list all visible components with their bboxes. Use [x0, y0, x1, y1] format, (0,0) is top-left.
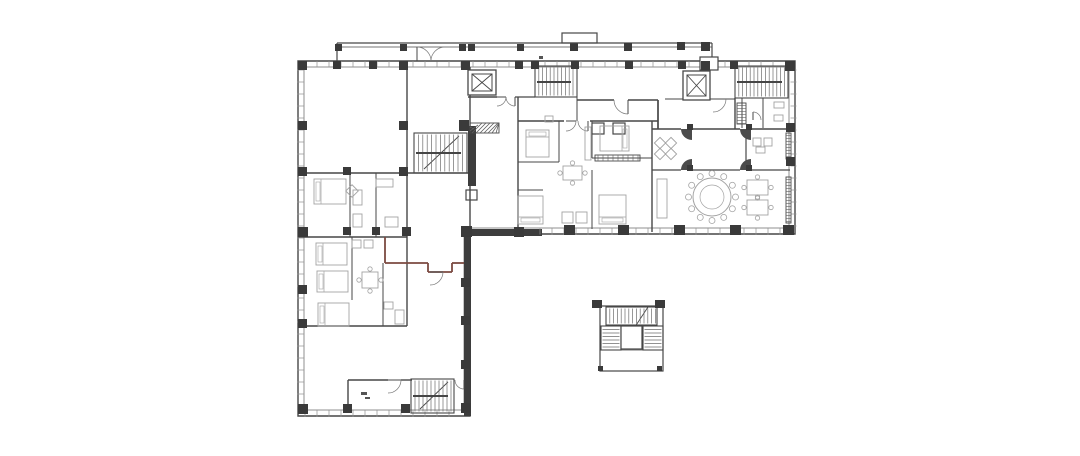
dining-table: [747, 180, 768, 195]
bed: [526, 130, 549, 157]
structural-column: [657, 366, 662, 371]
bed-pillow: [602, 218, 623, 222]
structural-column: [298, 227, 308, 237]
structural-column: [402, 227, 411, 236]
bed-pillow: [316, 182, 320, 201]
casework: [352, 240, 361, 248]
bed-pillow: [529, 132, 546, 136]
casework: [385, 217, 398, 227]
structural-column: [333, 61, 341, 69]
banquet-chair: [721, 174, 727, 180]
chair: [769, 185, 773, 189]
chair: [583, 171, 587, 175]
chair: [357, 278, 361, 282]
diamond-table: [654, 148, 665, 159]
casework: [774, 102, 784, 108]
casework: [384, 302, 393, 309]
structural-column: [461, 278, 470, 287]
round-banquet-table-inner: [700, 185, 724, 209]
casework: [774, 115, 783, 121]
door-swing-arc: [430, 272, 443, 285]
door-swing-arc: [455, 380, 464, 389]
banquet-chair: [709, 171, 715, 177]
structural-column: [730, 61, 738, 69]
diamond-table: [654, 137, 665, 148]
structural-column: [343, 167, 351, 175]
bed: [518, 196, 543, 224]
canopy-column: [701, 42, 710, 51]
structural-column: [786, 123, 795, 132]
casework: [562, 212, 573, 223]
building-outline-outer: [298, 61, 795, 416]
casework: [764, 138, 772, 146]
door-swing-arc: [578, 121, 588, 131]
canopy-column: [517, 44, 524, 51]
structural-column: [298, 167, 307, 176]
bed-pillow: [318, 246, 322, 262]
structural-column: [625, 61, 633, 69]
banquet-chair: [689, 182, 695, 188]
structural-column: [372, 227, 380, 235]
structural-column: [531, 61, 539, 69]
structural-column: [564, 225, 575, 235]
door-swing-arc: [417, 47, 431, 61]
structural-column: [298, 285, 307, 294]
dining-table: [563, 166, 582, 180]
structural-column: [785, 61, 795, 71]
casework: [576, 212, 587, 223]
structural-column: [399, 121, 408, 130]
floor-plan-page: [0, 0, 1080, 456]
structural-column: [369, 61, 377, 69]
structural-column: [515, 61, 523, 69]
canopy-column: [677, 42, 685, 50]
wall-poche: [468, 126, 476, 186]
banquet-chair: [697, 214, 703, 220]
structural-column: [598, 366, 603, 371]
bed: [314, 179, 346, 204]
detail-outline: [621, 326, 642, 349]
dining-table: [747, 200, 768, 215]
door-swing-arc: [506, 97, 515, 106]
tiny-annotation-mark: [361, 392, 367, 395]
structural-column: [461, 61, 470, 70]
door-fan: [681, 129, 692, 140]
structural-column: [655, 300, 665, 308]
canopy-column: [624, 43, 632, 51]
detail-outline: [562, 33, 597, 43]
chair: [558, 171, 562, 175]
structural-column: [783, 225, 794, 235]
canopy-column: [468, 44, 475, 51]
casework: [756, 147, 765, 153]
diamond-table: [665, 148, 676, 159]
structural-column: [687, 124, 693, 130]
casework: [353, 214, 362, 227]
banquet-chair: [721, 214, 727, 220]
casework: [395, 310, 404, 324]
floor-plan-drawing: [0, 0, 1080, 456]
structural-column: [461, 226, 472, 237]
structural-column: [674, 225, 685, 235]
door-swing-arc: [431, 47, 445, 61]
structural-column: [399, 167, 408, 176]
tiny-annotation-mark: [365, 397, 370, 399]
structural-column: [730, 225, 741, 235]
diamond-table: [346, 185, 359, 198]
chair: [570, 161, 574, 165]
structural-column: [343, 227, 351, 235]
casework: [376, 179, 393, 187]
door-swing-arc: [566, 121, 576, 131]
structural-column: [786, 157, 795, 166]
structural-column: [571, 61, 579, 69]
casework: [657, 179, 667, 218]
chair: [755, 175, 759, 179]
chair: [368, 267, 372, 271]
tiny-annotation-mark: [539, 56, 543, 59]
structural-column: [746, 165, 752, 171]
bed: [318, 303, 349, 326]
casework: [364, 240, 373, 248]
structural-column: [459, 120, 469, 131]
structural-column: [298, 61, 307, 70]
structural-column: [399, 61, 408, 70]
door-fan: [740, 129, 751, 140]
chair: [742, 205, 746, 209]
chair: [368, 289, 372, 293]
canopy-column: [400, 44, 407, 51]
casework: [753, 138, 761, 146]
structural-column: [298, 404, 308, 414]
banquet-chair: [729, 182, 735, 188]
banquet-chair: [697, 174, 703, 180]
structural-column: [401, 404, 410, 413]
banquet-chair: [689, 206, 695, 212]
banquet-chair: [709, 218, 715, 224]
structural-column: [746, 124, 752, 130]
banquet-chair: [686, 194, 692, 200]
door-swing-arc: [753, 112, 761, 120]
chair: [570, 181, 574, 185]
round-banquet-table: [693, 178, 731, 216]
structural-column: [343, 404, 352, 413]
structural-column: [687, 165, 693, 171]
door-swing-arc: [713, 99, 726, 112]
structural-column: [701, 61, 710, 70]
canopy-column: [570, 43, 578, 51]
banquet-chair: [729, 206, 735, 212]
structural-column: [618, 225, 629, 235]
bed-pillow: [320, 306, 324, 323]
bed: [599, 195, 626, 224]
door-swing-arc: [388, 380, 401, 393]
canopy-column: [459, 44, 466, 51]
door-swing-arc: [614, 100, 628, 114]
casework: [585, 127, 591, 160]
structural-column: [592, 300, 602, 308]
detail-outline: [592, 123, 604, 134]
structural-column: [514, 227, 524, 237]
building-outline-inner: [304, 67, 789, 410]
structural-column: [461, 403, 471, 413]
structural-column: [298, 121, 307, 130]
door-swing-arc: [497, 97, 506, 106]
detail-outline: [466, 190, 477, 200]
bed-pillow: [521, 218, 540, 222]
chair: [755, 216, 759, 220]
wall-poche: [462, 229, 542, 236]
bed-pillow: [319, 274, 323, 289]
structural-column: [678, 61, 686, 69]
structural-column: [461, 360, 470, 369]
banquet-chair: [733, 194, 739, 200]
structural-column: [298, 319, 307, 328]
dining-table: [362, 272, 378, 288]
canopy-column: [335, 44, 342, 51]
chair: [742, 185, 746, 189]
chair: [769, 205, 773, 209]
diamond-table: [665, 137, 676, 148]
structural-column: [461, 316, 470, 325]
